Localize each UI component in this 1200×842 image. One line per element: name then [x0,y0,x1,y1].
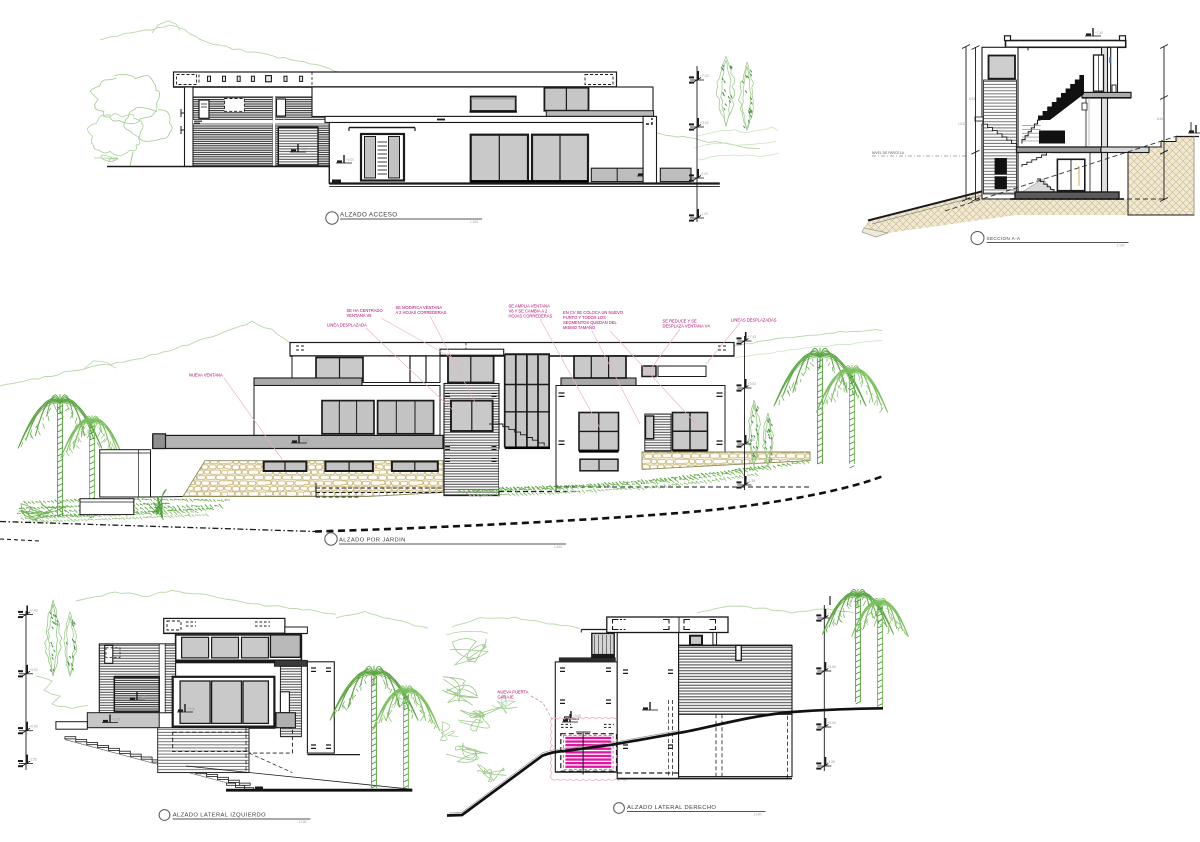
svg-text:+7.43: +7.43 [748,335,757,339]
svg-text:1:100: 1:100 [753,813,761,817]
svg-text:-1.55: -1.55 [29,758,37,762]
svg-text:-1.20: -1.20 [700,212,708,216]
svg-text:+0.00: +0.00 [29,725,38,729]
svg-text:-0.20: -0.20 [700,172,708,176]
svg-text:LINEAS DESPLAZADAS: LINEAS DESPLAZADAS [731,318,777,323]
svg-text:MISMO TAMAÑO: MISMO TAMAÑO [563,325,595,330]
svg-text:1:100: 1:100 [554,545,562,549]
svg-text:+3.60: +3.60 [827,665,836,669]
svg-text:+3.92: +3.92 [700,121,709,125]
svg-text:+0.00: +0.00 [346,158,354,162]
svg-text:HOJAS CORREDERAS: HOJAS CORREDERAS [509,314,553,319]
svg-text:VENTANA V5: VENTANA V5 [347,313,373,318]
svg-text:-0.20: -0.20 [748,438,756,442]
svg-text:ALZADO LATERAL IZQUIERDO: ALZADO LATERAL IZQUIERDO [173,813,266,819]
svg-text:+7.43: +7.43 [29,609,38,613]
svg-text:1:100: 1:100 [298,820,306,824]
svg-text:+1.10: +1.10 [300,147,308,151]
svg-text:ALZADO ACCESO: ALZADO ACCESO [340,212,397,219]
svg-text:+1.10: +1.10 [139,695,147,699]
svg-text:A 2 HOJAS CORREDERAS: A 2 HOJAS CORREDERAS [396,310,447,315]
svg-text:+7.40: +7.40 [1095,31,1103,35]
svg-text:ALZADO LATERAL DERECHO: ALZADO LATERAL DERECHO [627,805,716,811]
svg-text:+3.30: +3.30 [301,438,309,442]
svg-text:+3.92: +3.92 [748,382,757,386]
svg-text:+0.00: +0.00 [827,721,836,725]
svg-text:8.93: 8.93 [969,97,975,101]
svg-text:+0.00: +0.00 [187,707,195,711]
svg-text:+2.75: +2.75 [112,718,120,722]
svg-text:SECCION A-A: SECCION A-A [987,236,1022,241]
svg-text:NUEVA VENTANA: NUEVA VENTANA [189,373,223,378]
svg-text:ALZADO POR JARDIN: ALZADO POR JARDIN [339,538,406,544]
svg-text:NIVEL DE PARCELA: NIVEL DE PARCELA [872,151,905,155]
svg-text:-1.55: -1.55 [748,479,756,483]
svg-text:GARAJE: GARAJE [498,695,515,700]
svg-text:13.30: 13.30 [958,122,966,126]
svg-text:DESPLAZA VENTANA V4: DESPLAZA VENTANA V4 [663,324,711,329]
svg-text:1:100: 1:100 [470,220,478,224]
svg-text:8.46: 8.46 [1157,117,1163,121]
svg-text:1:100: 1:100 [1117,244,1125,248]
svg-text:-1.55: -1.55 [827,760,835,764]
svg-text:+3.92: +3.92 [29,668,38,672]
svg-text:LINEA DESPLAZADA: LINEA DESPLAZADA [327,323,367,328]
svg-text:+7.43: +7.43 [700,74,709,78]
